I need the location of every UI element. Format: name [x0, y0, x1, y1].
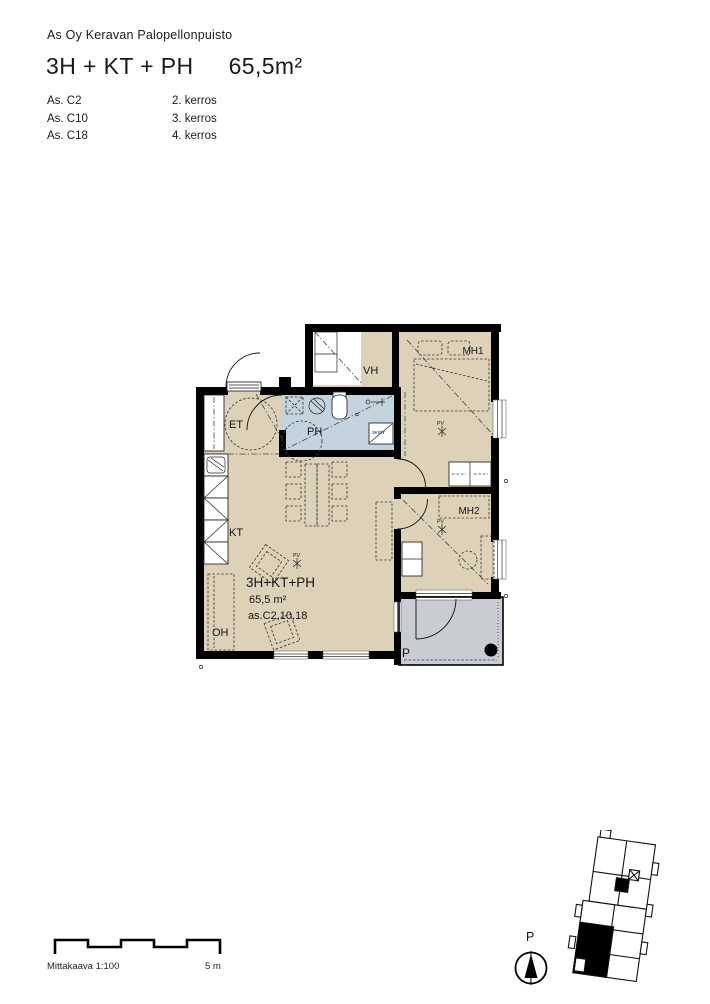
building-key-plan-svg	[556, 830, 680, 1000]
room-label-entrance: ET	[229, 419, 243, 431]
unit-list: As. C2 2. kerros As. C10 3. kerros As. C…	[47, 93, 217, 146]
scale-end-label: 5 m	[205, 961, 221, 972]
balcony-drain-dot	[485, 644, 498, 657]
scale-bar-svg	[45, 936, 235, 964]
plan-annotation-type: 3H+KT+PH	[246, 575, 315, 590]
north-triangle-icon	[525, 954, 538, 978]
north-label: P	[526, 930, 534, 944]
north-arrow-svg: P	[506, 927, 556, 991]
unit-apartment: As. C18	[47, 128, 172, 146]
building-key-plan	[556, 830, 680, 1000]
room-label-living: OH	[212, 627, 229, 639]
room-label-balcony: P	[402, 646, 410, 660]
unit-apartment: As. C2	[47, 93, 172, 111]
floor-plan-svg: ET ¤ SK/PY PH VH	[196, 324, 512, 672]
apartment-type: 3H + KT + PH	[46, 53, 194, 79]
apartment-area: 65,5m²	[229, 53, 303, 79]
room-label-kitchen: KT	[229, 527, 243, 539]
room-fills	[200, 328, 503, 665]
svg-text:PV: PV	[437, 421, 444, 427]
unit-floor: 4. kerros	[172, 128, 217, 146]
unit-row: As. C2 2. kerros	[47, 93, 217, 111]
svg-text:PV: PV	[437, 519, 444, 525]
floor-plan-sheet: As Oy Keravan Palopellonpuisto 3H + KT +…	[0, 0, 710, 1004]
entrance-door-leaf	[227, 382, 261, 391]
north-arrow: P	[506, 927, 556, 991]
plan-annotation-apartments: as.C2,10,18	[248, 610, 307, 622]
unit-apartment: As. C10	[47, 111, 172, 129]
unit-floor: 2. kerros	[172, 93, 217, 111]
plan-annotation-area: 65,5 m²	[249, 594, 287, 606]
scale-bar	[45, 936, 235, 964]
scale-label: Mittakaava 1:100	[47, 961, 119, 972]
room-label-bathroom: PH	[307, 426, 322, 438]
toilet	[332, 395, 347, 419]
apartment-type-line: 3H + KT + PH65,5m²	[46, 53, 303, 80]
unit-floor: 3. kerros	[172, 111, 217, 129]
room-label-walkin-closet: VH	[363, 365, 378, 377]
room-label-bedroom1: MH1	[462, 346, 484, 357]
floor-plan: ET ¤ SK/PY PH VH	[196, 324, 512, 672]
project-title: As Oy Keravan Palopellonpuisto	[47, 28, 232, 42]
sk-py-label: SK/PY	[372, 430, 385, 435]
room-label-bedroom2: MH2	[458, 506, 480, 517]
unit-row: As. C18 4. kerros	[47, 128, 217, 146]
unit-row: As. C10 3. kerros	[47, 111, 217, 129]
